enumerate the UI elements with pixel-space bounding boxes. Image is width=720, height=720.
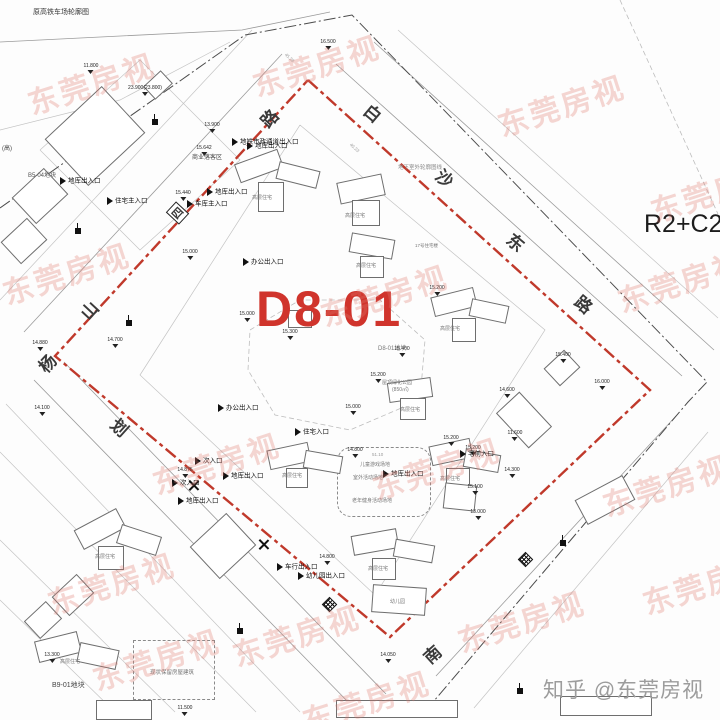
entrance-label: 幼儿园出入口 [298, 572, 345, 580]
elevation-triangle-icon [399, 353, 405, 357]
spot-elevation-marker: 23.900(23.800) [128, 86, 162, 96]
entrance-marker-icon [243, 258, 249, 266]
area-label: (850㎡) [392, 386, 409, 393]
elevation-triangle-icon [352, 454, 358, 458]
building-footprint [96, 700, 152, 720]
elevation-triangle-icon [350, 411, 356, 415]
spot-elevation-marker: 11.600 [508, 431, 523, 441]
elevation-triangle-icon [375, 379, 381, 383]
area-label: 高层住宅 [252, 194, 272, 201]
elevation-triangle-icon [112, 344, 118, 348]
site-code-label: D8-01 [256, 280, 402, 338]
area-label: 现状保留房屋建筑 [150, 668, 194, 676]
flag-marker-icon [237, 628, 243, 634]
spot-elevation-marker: 13.300 [44, 653, 59, 663]
area-label: 51.10 [372, 452, 383, 457]
entrance-marker-icon [383, 470, 389, 478]
entrance-marker-icon [295, 428, 301, 436]
elevation-triangle-icon [142, 92, 148, 96]
entrance-label: 宅前入口 [460, 450, 494, 458]
entrance-label: 住宅入口 [295, 428, 329, 436]
area-label: 高层住宅 [440, 475, 460, 482]
entrance-marker-icon [218, 404, 224, 412]
spot-elevation-marker: 15.200 [429, 286, 444, 296]
elevation-triangle-icon [39, 412, 45, 416]
entrance-label: 办公出入口 [218, 404, 259, 412]
elevation-triangle-icon [475, 516, 481, 520]
flag-marker-icon [75, 228, 81, 234]
spot-elevation-marker: 14.600 [499, 388, 514, 398]
entrance-marker-icon [460, 450, 466, 458]
area-label: 原高铁车场轮廓图 [33, 7, 89, 17]
elevation-triangle-icon [182, 474, 188, 478]
elevation-triangle-icon [88, 70, 94, 74]
spot-elevation-marker: 16.500 [320, 40, 335, 50]
road-parcel-line [620, 0, 718, 214]
entrance-label: 地库出入口 [223, 472, 264, 480]
area-label: 高层住宅 [60, 658, 80, 665]
entrance-label: 地库出入口 [60, 177, 101, 185]
area-label: (高) [2, 143, 12, 152]
elevation-triangle-icon [509, 474, 515, 478]
entrance-marker-icon [298, 572, 304, 580]
elevation-triangle-icon [244, 318, 250, 322]
area-label: 17号住宅楼 [415, 243, 438, 249]
area-label: 室外活动场地 [353, 474, 383, 481]
spot-elevation-marker: 14.300 [504, 468, 519, 478]
flag-marker-icon [126, 320, 132, 326]
area-label: 高层住宅 [282, 472, 302, 479]
area-label: 幼儿园 [390, 598, 405, 605]
entrance-label: 车行出入口 [277, 563, 318, 571]
spot-elevation-marker: 15.000 [239, 312, 254, 322]
flag-marker-icon [517, 688, 523, 694]
spot-elevation-marker: 14.800 [319, 555, 334, 565]
entrance-label: 地库出入口 [247, 142, 288, 150]
area-label: 商业落客区 [192, 152, 222, 161]
elevation-triangle-icon [209, 129, 215, 133]
elevation-triangle-icon [49, 659, 55, 663]
entrance-label: 地库出入口 [207, 188, 248, 196]
area-label: 高层住宅 [400, 406, 420, 413]
entrance-label: 车库主入口 [187, 200, 228, 208]
area-label: 地下室外轮廓图线 [398, 163, 442, 171]
spot-elevation-marker: 11.800 [84, 64, 99, 74]
spot-elevation-marker: 14.700 [107, 338, 122, 348]
crossing-x-symbol [258, 539, 269, 550]
entrance-marker-icon [107, 197, 113, 205]
spot-elevation-marker: 14.100 [34, 406, 49, 416]
spot-elevation-marker: 14.050 [380, 653, 395, 663]
area-label: 老年健身活动场地 [352, 497, 392, 504]
entrance-marker-icon [172, 479, 178, 487]
elevation-triangle-icon [504, 394, 510, 398]
elevation-triangle-icon [472, 491, 478, 495]
site-plan-map: D8-01 R2+C2 知乎 @东莞房视 原高铁车场轮廓图(高)B5-04地块B… [0, 0, 720, 720]
area-label: D8-01地块 [378, 343, 406, 352]
entrance-marker-icon [187, 200, 193, 208]
elevation-triangle-icon [187, 256, 193, 260]
entrance-marker-icon [207, 188, 213, 196]
entrance-label: 地库出入口 [383, 470, 424, 478]
crossing-x-symbol [188, 480, 199, 491]
spot-elevation-marker: 13.000 [470, 510, 485, 520]
entrance-marker-icon [178, 497, 184, 505]
flag-marker-icon [560, 540, 566, 546]
entrance-marker-icon [277, 563, 283, 571]
entrance-marker-icon [223, 472, 229, 480]
entrance-marker-icon [60, 177, 66, 185]
spot-elevation-marker: 16.000 [594, 380, 609, 390]
elevation-triangle-icon [448, 442, 454, 446]
entrance-label: 次入口 [195, 457, 223, 465]
elevation-triangle-icon [385, 659, 391, 663]
area-label: 高层住宅 [95, 553, 115, 560]
road-parcel-line [374, 42, 714, 350]
flag-marker-icon [152, 119, 158, 125]
spot-elevation-marker: 14.800 [347, 448, 362, 458]
entrance-label: 地库出入口 [178, 497, 219, 505]
elevation-triangle-icon [180, 197, 186, 201]
elevation-triangle-icon [512, 437, 518, 441]
zoning-label: R2+C2 [644, 210, 720, 239]
zhihu-credit-watermark: 知乎 @东莞房视 [543, 674, 704, 704]
spot-elevation-marker: 15.000 [182, 250, 197, 260]
spot-elevation-marker: 15.100 [467, 485, 482, 495]
area-label: 屋顶绿化公园 [382, 379, 412, 386]
area-label: B9-01地块 [52, 680, 85, 690]
spot-elevation-marker: 15.200 [443, 436, 458, 446]
spot-elevation-marker: 14.875 [177, 468, 192, 478]
elevation-triangle-icon [560, 359, 566, 363]
entrance-marker-icon [232, 138, 238, 146]
elevation-triangle-icon [182, 712, 188, 716]
spot-elevation-marker: 15.400 [555, 353, 570, 363]
entrance-label: 办公出入口 [243, 258, 284, 266]
area-label: 高层住宅 [440, 325, 460, 332]
area-label: 高层住宅 [368, 565, 388, 572]
elevation-triangle-icon [324, 561, 330, 565]
building-footprint [336, 700, 458, 718]
elevation-triangle-icon [325, 46, 331, 50]
elevation-triangle-icon [599, 386, 605, 390]
area-label: 儿童游戏场地 [360, 461, 390, 468]
road-parcel-line [0, 452, 256, 712]
entrance-marker-icon [195, 457, 201, 465]
area-label: B5-04地块 [28, 170, 56, 179]
elevation-triangle-icon [434, 292, 440, 296]
spot-elevation-marker: 13.900 [204, 123, 219, 133]
area-label: 高层住宅 [356, 262, 376, 269]
area-label: 高层住宅 [345, 212, 365, 219]
entrance-marker-icon [247, 142, 253, 150]
spot-elevation-marker: 11.500 [178, 706, 193, 716]
spot-elevation-marker: 15.000 [345, 405, 360, 415]
entrance-label: 住宅主入口 [107, 197, 148, 205]
